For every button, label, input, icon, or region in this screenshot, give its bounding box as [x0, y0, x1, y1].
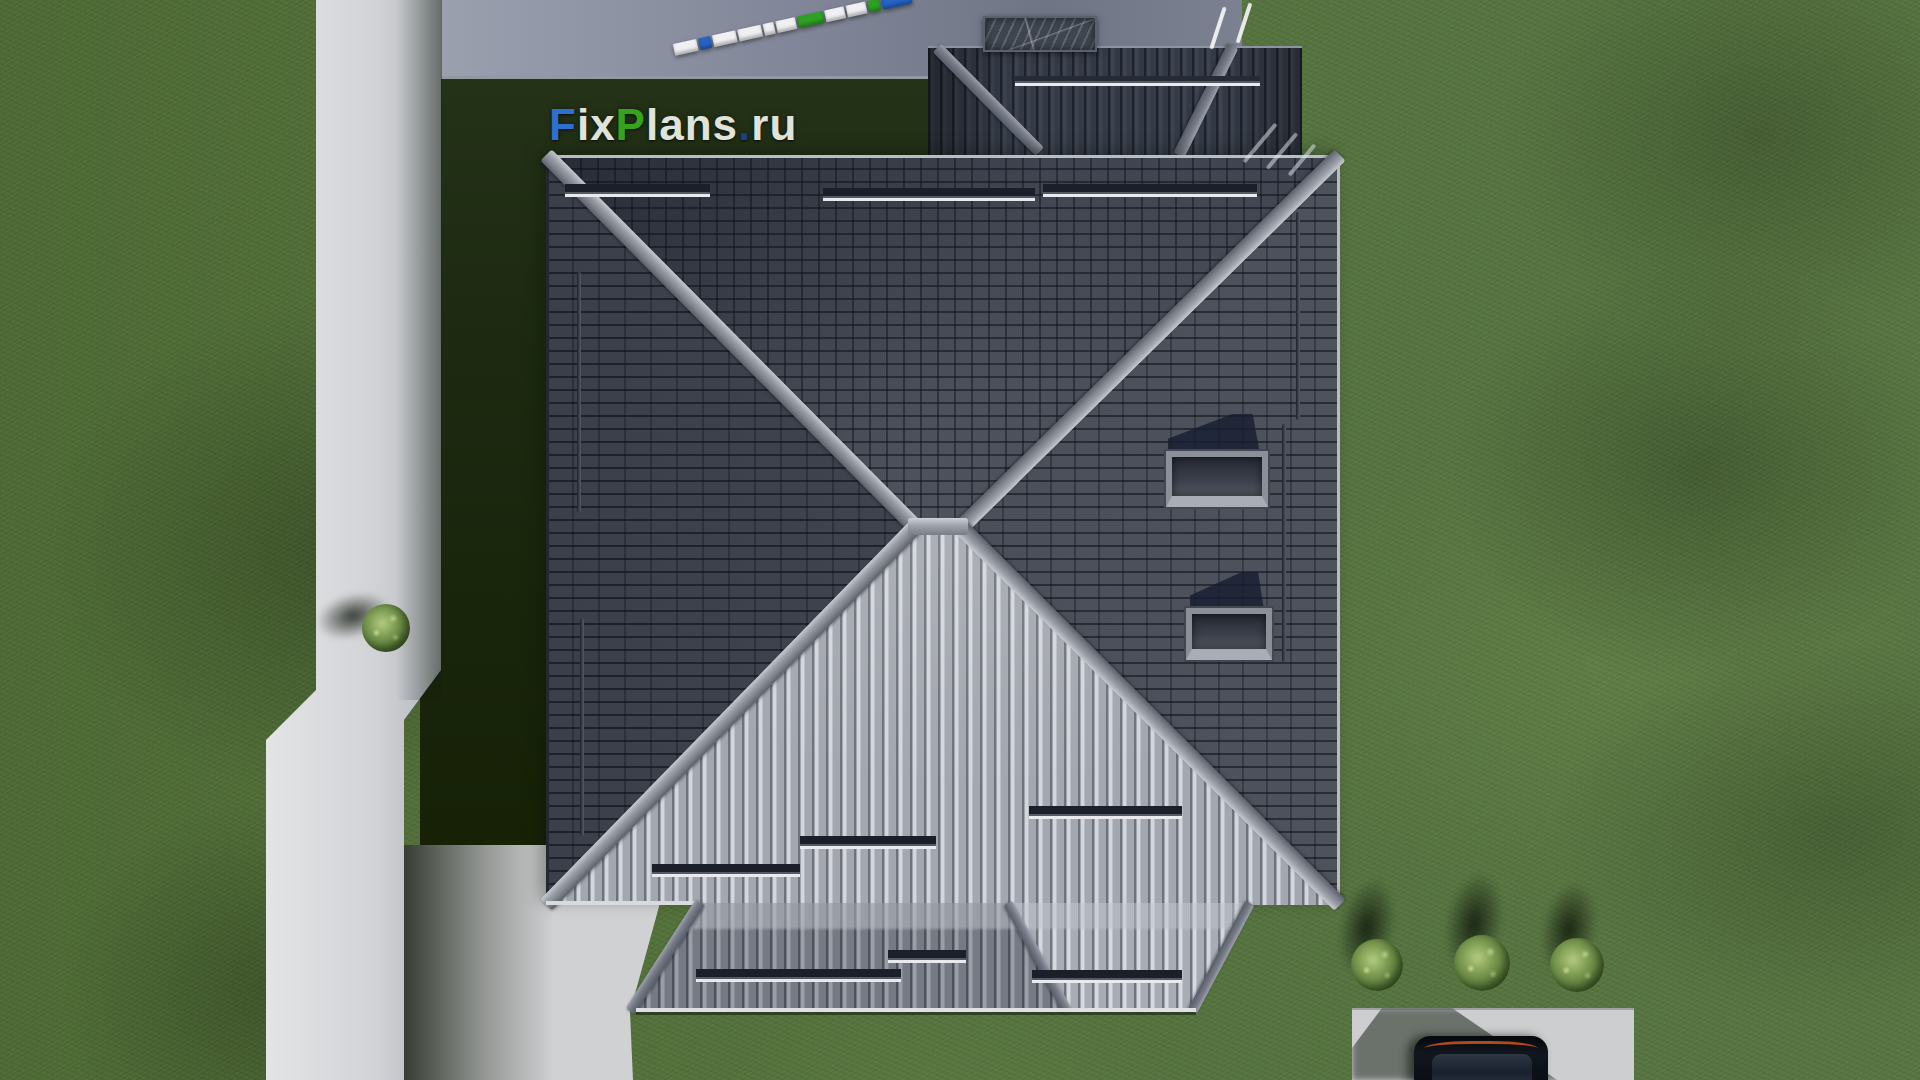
logo-letter: . — [738, 100, 751, 149]
logo-letter: i — [577, 100, 590, 149]
bush-row-3 — [1550, 938, 1604, 992]
central-ridge — [908, 518, 968, 535]
car-rear-window — [1432, 1054, 1532, 1080]
aerial-render-canvas: FixPlans.ru — [0, 0, 1920, 1080]
skylight-2 — [1186, 608, 1272, 660]
snow-guard-north-2 — [823, 188, 1035, 201]
snow-guard-apron-2 — [888, 950, 966, 963]
eave-right — [1337, 155, 1340, 905]
apron-eave-shadow — [636, 1012, 1196, 1015]
fixplans-watermark: FixPlans.ru — [549, 100, 797, 150]
chimney-cap — [983, 16, 1097, 52]
logo-letter: s — [713, 100, 738, 149]
snow-guard-south-2 — [800, 836, 936, 849]
logo-letter: u — [769, 100, 797, 149]
logo-letter: F — [549, 100, 577, 149]
bush-row-2 — [1454, 935, 1510, 991]
wing-snow-guard — [1015, 76, 1260, 86]
logo-letter: P — [616, 100, 646, 149]
roof-rail-west-upper — [577, 272, 581, 512]
snow-guard-apron-1 — [696, 969, 901, 982]
snow-guard-apron-3 — [1032, 970, 1182, 983]
eave-top — [546, 155, 1340, 158]
snow-guard-north-1 — [565, 184, 710, 197]
logo-letter: x — [590, 100, 615, 149]
roof-rail-east-upper — [1296, 212, 1300, 420]
logo-letter: a — [659, 100, 684, 149]
curb-edge — [441, 76, 928, 79]
logo-letter: r — [751, 100, 769, 149]
ruler-segment — [763, 22, 776, 36]
roof-rail-west-lower — [580, 618, 584, 836]
roof-rail-east-lower — [1282, 424, 1286, 662]
logo-letter: l — [646, 100, 659, 149]
ruler-segment — [698, 36, 712, 50]
path-edge-shadow — [396, 0, 442, 700]
snow-guard-north-3 — [1043, 184, 1257, 197]
snow-guard-south-3 — [1029, 806, 1182, 819]
bush-left — [362, 604, 410, 652]
logo-letter: n — [685, 100, 713, 149]
snow-guard-south-1 — [652, 864, 800, 877]
eave-left — [546, 155, 549, 905]
patio-shadow — [404, 845, 554, 1080]
bush-row-1 — [1351, 939, 1403, 991]
eave-notch — [546, 901, 700, 905]
skylight-1 — [1166, 451, 1268, 507]
